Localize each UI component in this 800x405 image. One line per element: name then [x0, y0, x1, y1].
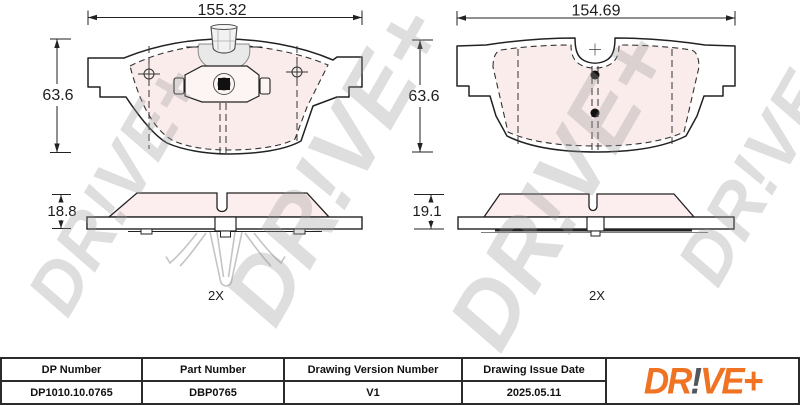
dim-text-width-left: 155.32 [198, 2, 247, 19]
drawing-area: 155.32 63.6 18.8 2X 154.69 63.6 [0, 0, 800, 357]
notch-crosshair [589, 44, 601, 56]
qty-label-left: 2X [208, 288, 224, 303]
brand-logo-cell: DR!VE+ [607, 359, 798, 403]
piston-guide-nub [221, 231, 231, 237]
dp-number-value: DP1010.10.0765 [2, 382, 143, 403]
logo-exclamation: ! [690, 361, 700, 402]
logo-ve-plus: VE+ [700, 361, 761, 402]
dim-width-left: 155.32 [88, 2, 362, 25]
left-pad-side-view [87, 193, 362, 286]
dim-height-left: 63.6 [42, 39, 73, 153]
dim-height-right: 63.6 [408, 40, 439, 152]
piston-guide [215, 217, 236, 231]
dim-width-right: 154.69 [457, 3, 735, 26]
brand-logo: DR!VE+ [644, 363, 761, 400]
left-side-friction [109, 193, 329, 217]
right-pad-front-view [457, 38, 735, 152]
drawing-version-value: V1 [285, 382, 463, 403]
shim-tab [141, 229, 152, 234]
left-side-clip [166, 232, 285, 286]
rivet-square [218, 78, 230, 90]
shim-tab [294, 229, 305, 234]
right-side-friction [484, 194, 694, 217]
technical-drawing-canvas: 155.32 63.6 18.8 2X 154.69 63.6 [0, 0, 800, 357]
right-pad-friction [493, 45, 699, 146]
left-pad-front-view [88, 25, 362, 155]
right-pad-side-view [458, 194, 734, 236]
issue-date-value: 2025.05.11 [463, 382, 607, 403]
dp-number-header: DP Number [2, 359, 143, 382]
rivet-dot-top [591, 71, 600, 80]
dim-text-thickness-right: 19.1 [412, 203, 441, 220]
title-block: DP Number Part Number Drawing Version Nu… [0, 357, 800, 405]
dim-text-height-right: 63.6 [408, 88, 439, 105]
piston-guide-nub [591, 231, 600, 236]
logo-dr: DR [644, 361, 691, 402]
qty-label-right: 2X [589, 288, 605, 303]
drawing-version-header: Drawing Version Number [285, 359, 463, 382]
dim-text-thickness-left: 18.8 [47, 203, 76, 220]
issue-date-header: Drawing Issue Date [463, 359, 607, 382]
part-number-header: Part Number [143, 359, 285, 382]
drawing-sheet: 155.32 63.6 18.8 2X 154.69 63.6 [0, 0, 800, 405]
part-number-value: DBP0765 [143, 382, 285, 403]
dim-thickness-right: 19.1 [412, 195, 444, 230]
dim-thickness-left: 18.8 [47, 195, 76, 229]
rivet-dot-bottom [591, 109, 600, 118]
dim-text-height-left: 63.6 [42, 87, 73, 104]
dim-text-width-right: 154.69 [572, 3, 621, 20]
piston-guide [587, 217, 604, 231]
